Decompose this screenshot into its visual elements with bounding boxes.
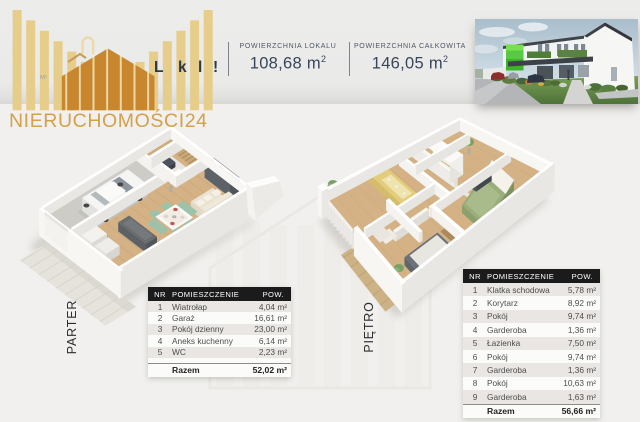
svg-text:M¹: M¹: [40, 75, 47, 81]
